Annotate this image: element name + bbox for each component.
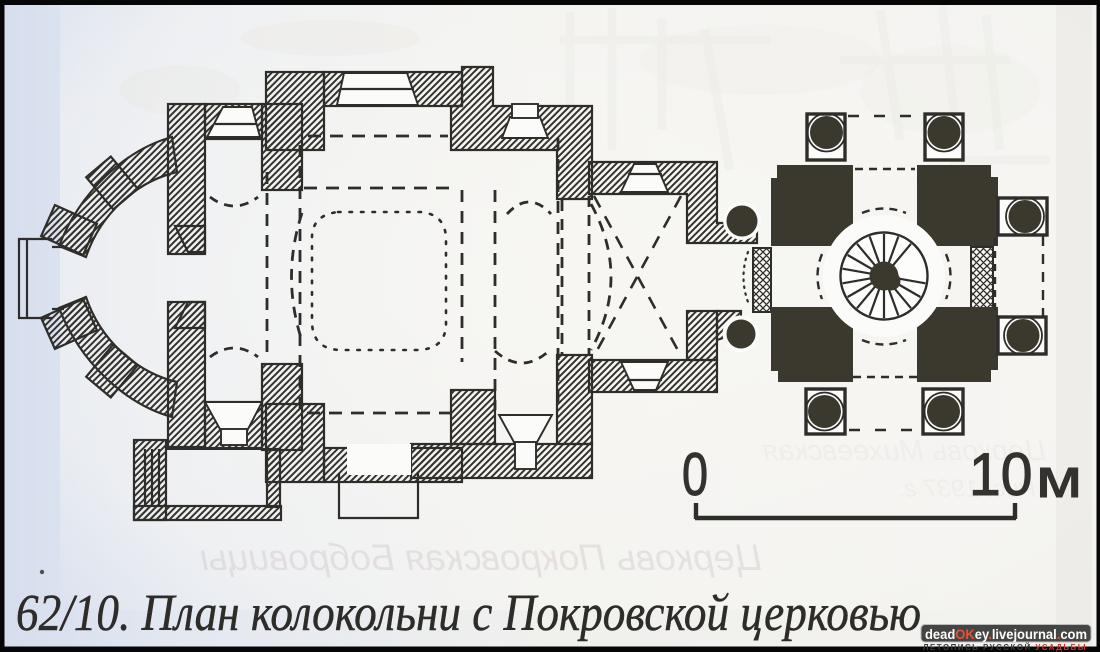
svg-text:Церковь Покровская Бобровицы: Церковь Покровская Бобровицы bbox=[200, 537, 762, 578]
svg-text:10: 10 bbox=[969, 442, 1032, 509]
svg-text:ЛЕТОПИСЬ РУССКОЙ УСАДЬБЫ: ЛЕТОПИСЬ РУССКОЙ УСАДЬБЫ bbox=[923, 643, 1087, 652]
svg-text:deadOKey.livejournal.com: deadOKey.livejournal.com bbox=[925, 626, 1087, 642]
svg-text:0: 0 bbox=[682, 441, 708, 508]
svg-text:м: м bbox=[1036, 447, 1082, 509]
svg-text:62/10. План колокольни с Покро: 62/10. План колокольни с Покровской церк… bbox=[16, 585, 921, 642]
